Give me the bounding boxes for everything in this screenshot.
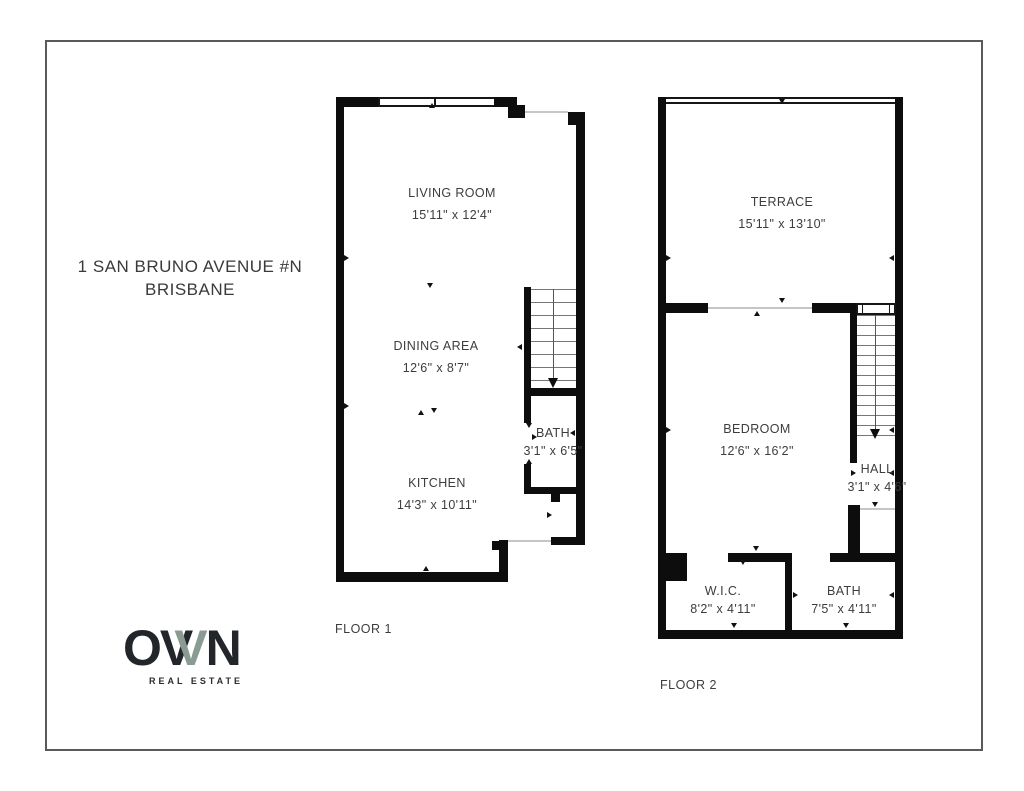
hall-door-opening-line	[860, 508, 895, 510]
logo-letter-o: O	[123, 620, 160, 676]
room-label-hall: HALL 3'1" x 4'6"	[847, 460, 906, 496]
room-name: BATH	[811, 582, 876, 600]
room-name: LIVING ROOM	[408, 183, 496, 205]
tick-marker	[431, 408, 437, 413]
wall-segment	[492, 541, 508, 550]
room-name: DINING AREA	[394, 336, 479, 358]
tick-marker	[423, 566, 429, 571]
wall-segment	[848, 505, 860, 555]
tick-marker	[666, 255, 671, 261]
room-name: KITCHEN	[397, 473, 477, 495]
room-name: TERRACE	[738, 192, 826, 214]
wall-segment	[850, 313, 857, 463]
room-dimensions: 3'1" x 4'6"	[847, 478, 906, 496]
address-line-1: 1 SAN BRUNO AVENUE #N	[75, 255, 305, 278]
room-dimensions: 15'11" x 12'4"	[408, 205, 496, 227]
room-dimensions: 15'11" x 13'10"	[738, 214, 826, 236]
tick-marker	[429, 103, 435, 108]
wall-segment	[336, 97, 344, 582]
door-opening-line	[525, 111, 568, 113]
wall-segment	[551, 537, 585, 545]
tick-marker	[731, 623, 737, 628]
address-line-2: BRISBANE	[75, 278, 305, 301]
tick-marker	[753, 546, 759, 551]
tick-marker	[889, 427, 894, 433]
wall-segment	[576, 112, 585, 545]
room-dimensions: 8'2" x 4'11"	[690, 600, 755, 618]
floorplan-page: 1 SAN BRUNO AVENUE #N BRISBANE	[0, 0, 1024, 791]
logo-letter-w-accent: V	[174, 620, 205, 676]
room-label-living-room: LIVING ROOM 15'11" x 12'4"	[408, 183, 496, 227]
tick-marker	[779, 298, 785, 303]
wall-segment	[658, 303, 708, 313]
wall-segment	[658, 630, 903, 639]
room-name: HALL	[847, 460, 906, 478]
room-name: BEDROOM	[720, 419, 794, 441]
room-label-wic: W.I.C. 8'2" x 4'11"	[690, 582, 755, 618]
room-dimensions: 7'5" x 4'11"	[811, 600, 876, 618]
tick-marker	[344, 255, 349, 261]
tick-marker	[843, 623, 849, 628]
wall-segment	[524, 396, 531, 423]
tick-marker	[418, 410, 424, 415]
stair-down-arrow-icon	[548, 378, 558, 388]
room-dimensions: 12'6" x 16'2"	[720, 441, 794, 463]
room-dimensions: 12'6" x 8'7"	[394, 358, 479, 380]
wall-segment	[336, 97, 380, 107]
entry-door-opening-line	[508, 540, 551, 542]
stair-window	[856, 303, 896, 315]
stair-down-arrow-icon	[870, 429, 880, 439]
logo-wordmark: OVVN	[123, 623, 263, 673]
tick-marker	[427, 283, 433, 288]
wall-segment	[336, 572, 508, 582]
room-name: BATH	[523, 424, 582, 442]
tick-marker	[344, 403, 349, 409]
staircase-floor2	[857, 315, 895, 437]
room-label-bath-floor1: BATH 3'1" x 6'5"	[523, 424, 582, 460]
tick-marker	[793, 592, 798, 598]
wall-segment	[524, 464, 531, 488]
wall-fixture-block	[666, 553, 687, 581]
room-label-dining-area: DINING AREA 12'6" x 8'7"	[394, 336, 479, 380]
tick-marker	[872, 502, 878, 507]
room-dimensions: 14'3" x 10'11"	[397, 495, 477, 517]
window-mullion	[862, 305, 863, 313]
logo-tagline: REAL ESTATE	[149, 676, 263, 686]
wall-segment	[785, 561, 792, 632]
room-dimensions: 3'1" x 6'5"	[523, 442, 582, 460]
tick-marker	[889, 255, 894, 261]
tick-marker	[517, 344, 522, 350]
wall-segment	[728, 553, 792, 562]
room-name: W.I.C.	[690, 582, 755, 600]
own-real-estate-logo: OVVN REAL ESTATE	[123, 623, 263, 686]
wall-segment	[524, 287, 531, 388]
tick-marker	[889, 592, 894, 598]
tick-marker	[740, 560, 746, 565]
floor2-label: FLOOR 2	[660, 678, 717, 692]
wall-segment	[524, 487, 585, 494]
room-label-bedroom: BEDROOM 12'6" x 16'2"	[720, 419, 794, 463]
wall-segment	[658, 97, 666, 639]
floor1-label: FLOOR 1	[335, 622, 392, 636]
room-label-kitchen: KITCHEN 14'3" x 10'11"	[397, 473, 477, 517]
terrace-door-opening-line	[708, 307, 812, 309]
tick-marker	[754, 311, 760, 316]
wall-segment	[830, 553, 903, 562]
window-living-room	[378, 97, 496, 107]
tick-marker	[666, 427, 671, 433]
tick-marker	[779, 99, 785, 104]
window-mullion	[889, 305, 890, 313]
stair-direction-line	[553, 289, 554, 379]
wall-segment	[812, 303, 858, 313]
property-address: 1 SAN BRUNO AVENUE #N BRISBANE	[75, 255, 305, 302]
wall-segment	[551, 494, 560, 502]
logo-letter-n: N	[206, 620, 240, 676]
wall-segment	[524, 388, 585, 396]
room-label-bath-floor2: BATH 7'5" x 4'11"	[811, 582, 876, 618]
room-label-terrace: TERRACE 15'11" x 13'10"	[738, 192, 826, 236]
tick-marker	[547, 512, 552, 518]
stair-direction-line	[875, 315, 876, 430]
wall-segment	[508, 105, 525, 118]
